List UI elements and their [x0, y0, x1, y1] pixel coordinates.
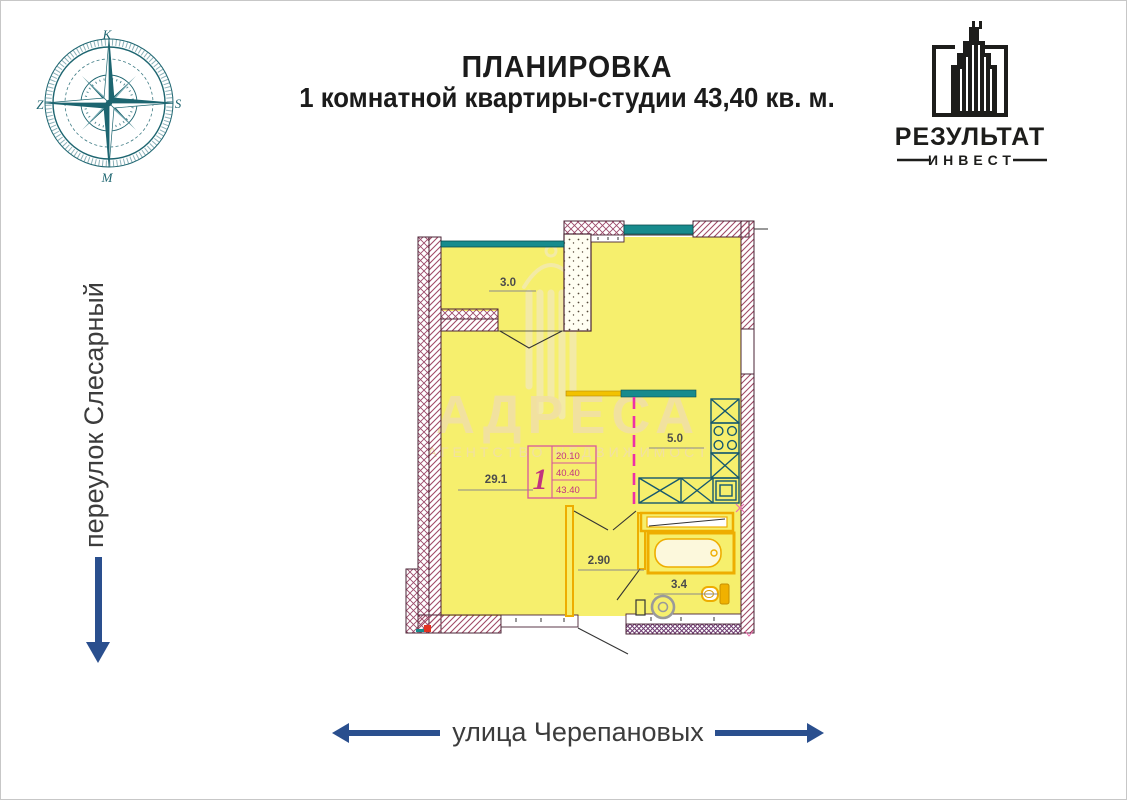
street-bottom-arrow-left-icon [332, 723, 349, 743]
page-title: ПЛАНИРОВКА 1 комнатной квартиры-студии 4… [273, 51, 862, 114]
title-line-2: 1 комнатной квартиры-студии 43,40 кв. м. [273, 82, 862, 114]
pillar [564, 234, 591, 331]
toilet-tank [720, 584, 729, 604]
logo-building-icon [951, 21, 997, 115]
title-line-1: ПЛАНИРОВКА [273, 51, 862, 82]
stamp-row3: 43.40 [556, 485, 580, 496]
street-bottom-arrow-right-icon [807, 723, 824, 743]
kitchen-partition-teal [621, 390, 696, 397]
washing-machine [652, 596, 674, 618]
balcony-window [441, 241, 564, 247]
kitchen-counter-edge [566, 391, 621, 396]
street-left-arrow-line [95, 557, 102, 643]
room-area-kitchen: 5.0 [667, 433, 683, 445]
street-left-arrow-down-icon [86, 642, 110, 663]
corner-marker-teal [416, 629, 424, 632]
company-logo: РЕЗУЛЬТАТ ИНВЕСТ [879, 19, 1069, 179]
compass-letter-right: S [175, 96, 182, 111]
street-label-bottom: улица Черепановых [448, 717, 708, 748]
floor-plan: АДРЕСА АГЕНТСТВО НЕДВИЖИМОСТИ [396, 201, 771, 661]
room-area-living: 29.1 [485, 474, 508, 486]
flyer-page: К S М Z ПЛАНИРОВКА 1 комнатной квартиры-… [0, 0, 1127, 800]
stamp-rooms-count: 1 [533, 463, 548, 496]
compass-letter-top: К [102, 27, 113, 42]
compass-rose-icon: К S М Z [29, 15, 199, 190]
logo-brand-text: РЕЗУЛЬТАТ [895, 123, 1045, 151]
compass-letter-left: Z [36, 97, 44, 112]
room-area-balcony: 3.0 [500, 277, 516, 289]
corner-marker-red [424, 625, 431, 632]
street-bottom-arrow-line-left [348, 730, 440, 736]
compass-letter-bottom: М [101, 170, 114, 185]
hall-partition-wall [566, 506, 573, 616]
room-area-hall: 2.90 [588, 555, 610, 567]
stamp-row2: 40.40 [556, 468, 580, 479]
street-label-left: переулок Слесарный [79, 288, 109, 548]
street-bottom-arrow-line-right [715, 730, 807, 736]
stamp-row1: 20.10 [556, 451, 580, 462]
pipe-shaft [636, 600, 645, 615]
logo-sub-text: ИНВЕСТ [928, 152, 1016, 168]
room-area-bathroom: 3.4 [671, 579, 688, 591]
top-window [624, 225, 693, 234]
